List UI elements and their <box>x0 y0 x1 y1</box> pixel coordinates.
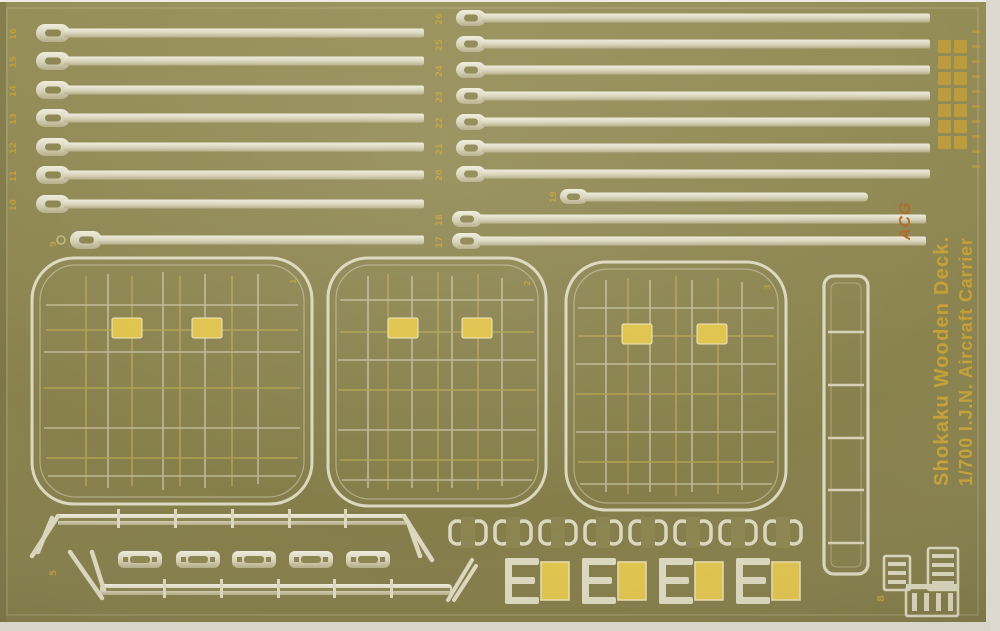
photo-vignette <box>0 2 986 622</box>
photoetch-sheet-drawing: 16 15 14 13 12 11 10 9 26 25 24 23 22 21… <box>0 0 1000 631</box>
photo-of-photoetch-sheet: 16 15 14 13 12 11 10 9 26 25 24 23 22 21… <box>0 0 1000 631</box>
background-right-edge <box>986 0 1000 631</box>
